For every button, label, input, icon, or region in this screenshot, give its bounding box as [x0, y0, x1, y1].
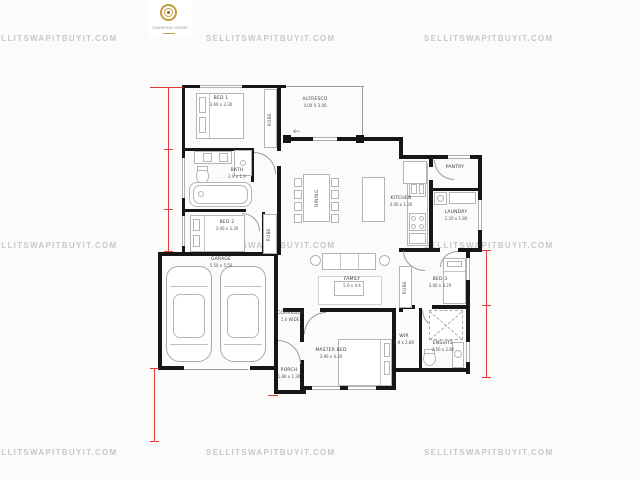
room-label-corridor: CORRIDOR 1.4 WIDE: [260, 311, 320, 322]
watermark-text: SELLITSWAPITBUYIT.COM: [0, 448, 118, 457]
sink-bowl: [411, 184, 417, 194]
watermark-text: SELLITSWAPITBUYIT.COM: [424, 448, 554, 457]
chair-icon: [331, 202, 339, 211]
wall-segment: [283, 137, 313, 141]
dimension-tick: [164, 149, 173, 150]
room-label-ensuite: ENSUITE 2.50 x 2.80: [413, 341, 473, 352]
dimension-tick: [164, 251, 173, 252]
pillow-icon: [193, 235, 200, 247]
pillow-icon: [199, 117, 206, 133]
room-dims: 3.90 x 4.20: [301, 354, 361, 359]
dimension-line: [168, 87, 169, 252]
chair-icon: [294, 214, 302, 223]
room-dims: 3.00 x 3.30: [197, 226, 257, 231]
side-table-icon: [379, 255, 390, 266]
entry-arrow-icon: ←: [293, 127, 301, 137]
sofa-icon: [322, 253, 376, 270]
wall-segment: [274, 390, 306, 394]
logo-underline: [163, 33, 175, 34]
watermark-text: SELLITSWAPITBUYIT.COM: [206, 448, 336, 457]
watermark-text: SELLITSWAPITBUYIT.COM: [0, 241, 118, 250]
robe-label: ROBE: [402, 274, 407, 300]
chair-icon: [294, 178, 302, 187]
robe-label: ROBE: [267, 103, 272, 135]
alfresco-edge-line: [286, 86, 364, 87]
dimension-line: [154, 368, 155, 442]
room-dims: 5.0 x 4.4: [322, 283, 382, 288]
chair-icon: [331, 214, 339, 223]
dimension-tick: [164, 209, 173, 210]
wall-segment: [320, 308, 394, 312]
car-roof: [227, 294, 259, 338]
room-label-alfresco: ALFRESCO 4.00 X 3.00: [285, 97, 345, 108]
chair-icon: [294, 190, 302, 199]
pantry-shelf-icon: [403, 161, 427, 184]
bed-fold-line: [444, 271, 465, 272]
side-table-icon: [310, 255, 321, 266]
room-dims: 2.20 x 1.80: [426, 216, 486, 221]
burner-icon: [419, 216, 424, 221]
pillow-icon: [447, 261, 462, 267]
burner-icon: [411, 224, 416, 229]
dimension-tick: [150, 441, 159, 442]
pillow-icon: [384, 361, 390, 375]
drain-icon: [198, 191, 204, 197]
room-label-bed3: BED 3 3.00 x 3.20: [410, 277, 470, 288]
dimension-tick: [482, 305, 491, 306]
logo-brand-text: CHAMPION GROUP: [144, 26, 196, 30]
shower-tiled-icon: [429, 310, 463, 340]
room-label-dining: DINING: [314, 183, 319, 213]
room-label-family: FAMILY 5.0 x 4.4: [322, 277, 382, 288]
bed-fold-line: [380, 340, 381, 385]
chair-icon: [294, 202, 302, 211]
oven-icon: [409, 233, 426, 244]
room-label-garage: GARAGE 5.50 x 5.50: [191, 257, 251, 268]
car-roof: [173, 294, 205, 338]
dimension-tick: [150, 368, 159, 369]
room-dims: 3.00 x 1.30: [371, 202, 431, 207]
room-label-master: MASTER BED 3.90 x 4.20: [301, 348, 361, 359]
room-dims: 3.60 x 3.30: [191, 102, 251, 107]
window: [182, 158, 185, 198]
room-dims: 3.00 x 3.20: [410, 283, 470, 288]
burner-icon: [419, 224, 424, 229]
logo-center-dot-icon: [167, 11, 170, 14]
wall-segment: [364, 137, 403, 141]
watermark-text: SELLITSWAPITBUYIT.COM: [424, 34, 554, 43]
sink-bowl: [419, 184, 424, 194]
wall-segment: [158, 366, 184, 370]
wall-segment: [396, 368, 470, 372]
alfresco-edge-line: [362, 86, 363, 139]
door-arc: [278, 340, 301, 364]
wall-segment: [337, 137, 364, 141]
room-dims: 1.4 WIDE: [260, 317, 320, 322]
robe-label: ROBE: [266, 221, 271, 247]
wall-segment: [458, 248, 482, 252]
chair-icon: [331, 178, 339, 187]
room-dims: 5.50 x 5.50: [191, 263, 251, 268]
watermark-text: SELLITSWAPITBUYIT.COM: [424, 241, 554, 250]
basin-icon: [219, 153, 228, 162]
basin-icon: [203, 153, 212, 162]
window: [348, 386, 376, 390]
wall-segment: [277, 166, 281, 255]
dimension-line: [486, 250, 487, 378]
chair-icon: [331, 190, 339, 199]
burner-icon: [411, 216, 416, 221]
laundry-bench-icon: [449, 192, 476, 204]
floor-plan-image: SELLITSWAPITBUYIT.COM SELLITSWAPITBUYIT.…: [0, 0, 640, 480]
dimension-line: [150, 87, 183, 88]
room-label-laundry: LAUNDRY 2.20 x 1.80: [426, 210, 486, 221]
room-label-bath: BATH 2.9 x 1.9: [207, 168, 267, 179]
room-label-bed1: BED 1 3.60 x 3.30: [191, 96, 251, 107]
sofa-cushion-line: [358, 254, 359, 269]
room-label-bed2: BED 2 3.00 x 3.30: [197, 220, 257, 231]
wall-segment: [158, 252, 278, 256]
shower-drain-icon: [240, 160, 246, 166]
room-label-kitchen: KITCHEN 3.00 x 1.30: [371, 196, 431, 207]
wall-segment: [403, 155, 482, 159]
dimension-tick: [482, 377, 491, 378]
wall-segment: [182, 209, 246, 212]
dimension-tick: [482, 250, 491, 251]
room-dims: 4.00 X 3.00: [285, 103, 345, 108]
car-trunk-line: [224, 344, 262, 345]
window: [313, 137, 337, 141]
window: [312, 386, 340, 390]
window: [182, 216, 185, 246]
car-hood-line: [170, 286, 208, 287]
room-dims: 2.9 x 1.9: [207, 174, 267, 179]
sofa-cushion-line: [340, 254, 341, 269]
room-name: PANTRY: [425, 165, 485, 171]
trough-bowl: [437, 195, 444, 202]
room-dims: 1.80 x 1.30: [259, 374, 319, 379]
wall-segment: [433, 188, 478, 191]
window: [200, 85, 242, 88]
wall-segment: [432, 305, 470, 309]
room-label-porch: PORCH 1.80 x 1.30: [259, 368, 319, 379]
car-hood-line: [224, 286, 262, 287]
room-dims: 2.50 x 2.80: [413, 347, 473, 352]
wall-segment: [158, 252, 162, 370]
watermark-text: SELLITSWAPITBUYIT.COM: [0, 34, 118, 43]
dimension-tick: [268, 395, 278, 396]
wall-segment: [277, 85, 281, 151]
watermark-text: SELLITSWAPITBUYIT.COM: [206, 34, 336, 43]
room-label-pantry: PANTRY: [425, 165, 485, 171]
window: [448, 155, 470, 159]
car-trunk-line: [170, 344, 208, 345]
garage-door-line: [184, 369, 248, 370]
